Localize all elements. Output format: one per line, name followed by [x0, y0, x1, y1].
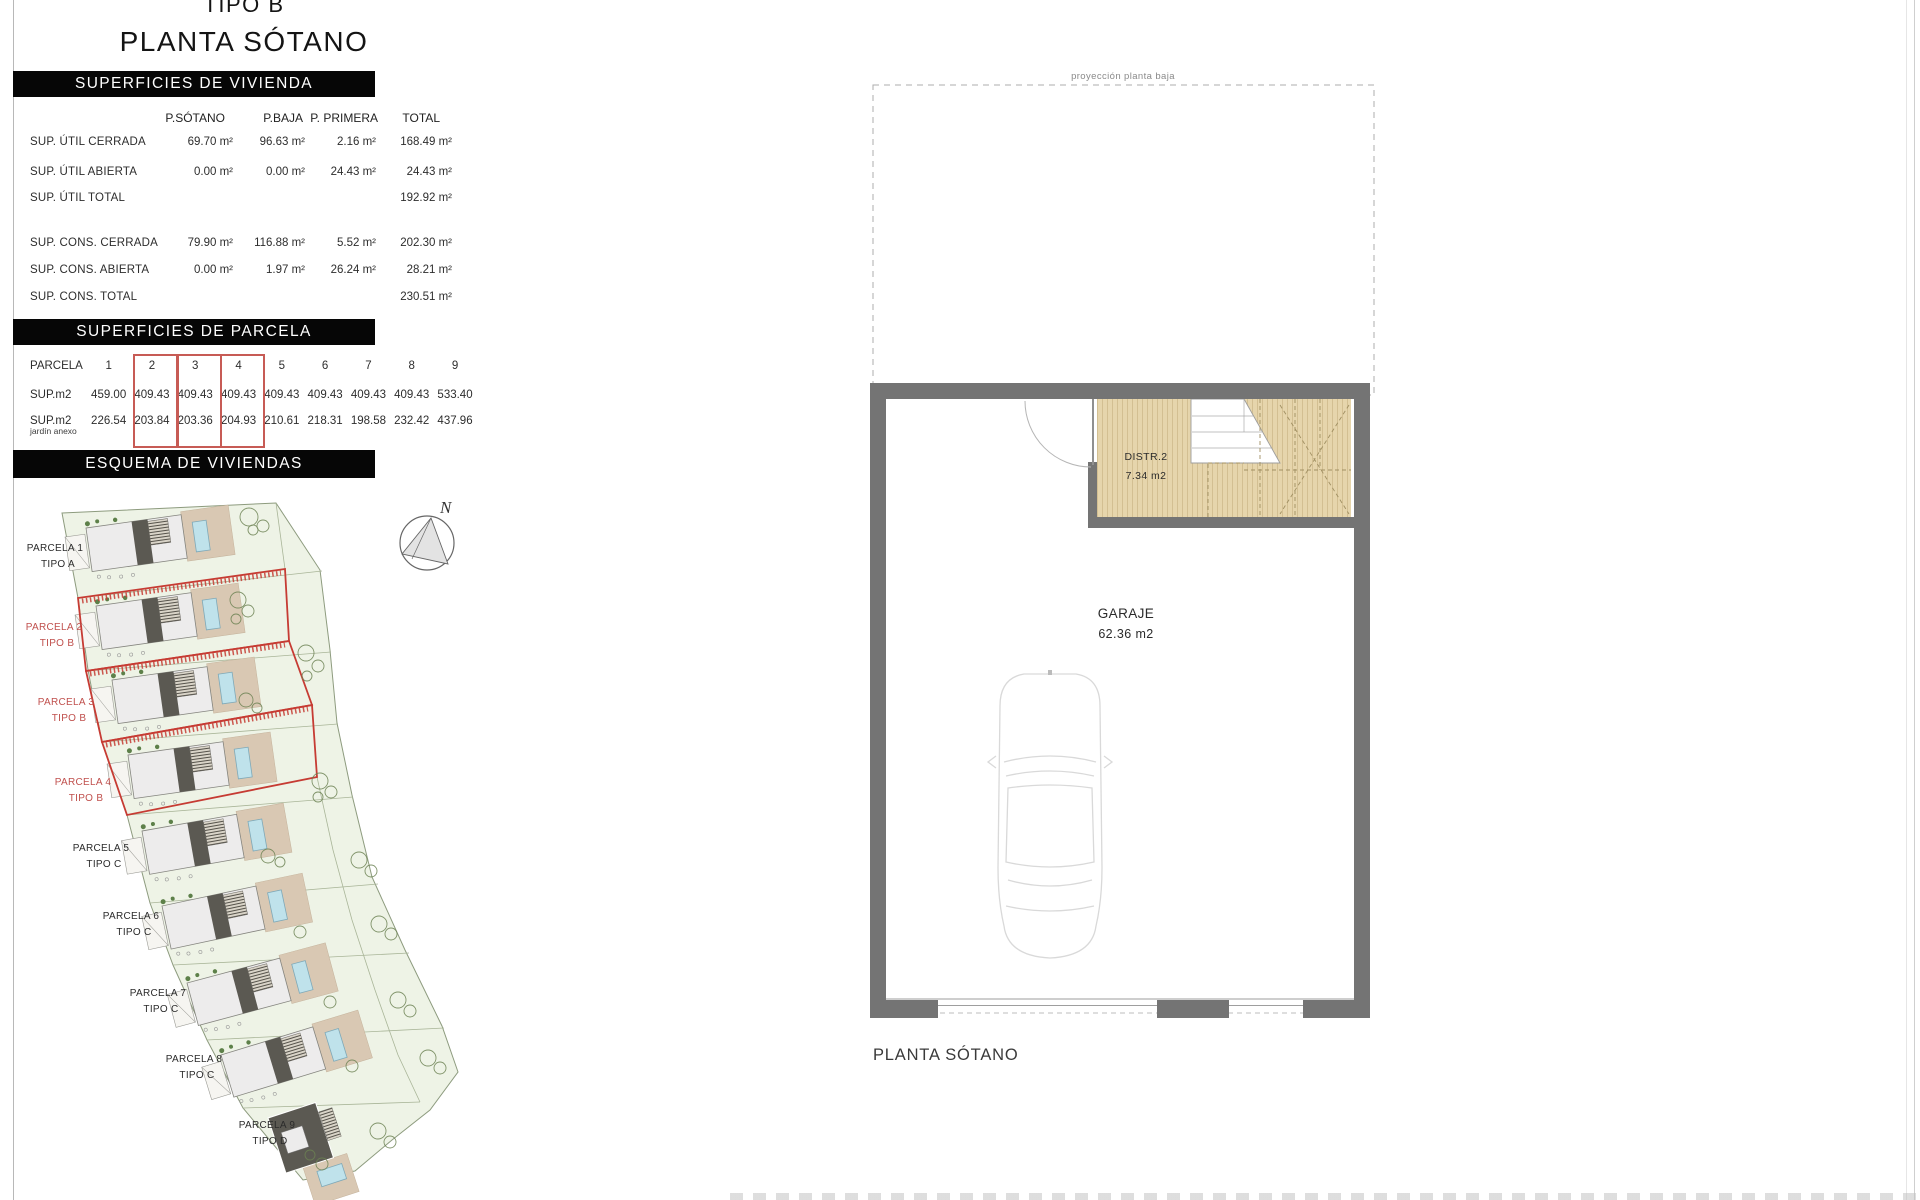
section-bar-superficies-vivienda: SUPERFICIES DE VIVIENDA: [13, 71, 375, 97]
basement-floor-plan: proyección planta baja: [860, 60, 1420, 1070]
plan-caption: PLANTA SÓTANO: [873, 1046, 1019, 1065]
svg-text:TIPO C: TIPO C: [179, 1070, 214, 1081]
svg-text:TIPO A: TIPO A: [41, 559, 75, 570]
svg-text:TIPO C: TIPO C: [116, 927, 151, 938]
car-outline: [988, 670, 1112, 958]
svg-text:PARCELA 7: PARCELA 7: [130, 988, 187, 999]
highlight-box-parcela-3: [177, 354, 222, 448]
svg-text:PARCELA 4: PARCELA 4: [55, 777, 112, 788]
sheet-title-type: TIPO B: [13, 0, 475, 18]
table-row: SUP. CONS. TOTAL 230.51 m²: [13, 287, 465, 307]
svg-text:TIPO D: TIPO D: [252, 1136, 287, 1147]
svg-text:PARCELA 5: PARCELA 5: [73, 843, 130, 854]
col-pprimera: P. PRIMERA: [307, 108, 378, 128]
room-name-distr2: DISTR.2: [1124, 451, 1167, 463]
svg-text:TIPO B: TIPO B: [40, 638, 75, 649]
site-plan: PARCELA 1 TIPO A PARCELA 2 TIPO B PARCEL…: [13, 486, 483, 1200]
cutoff-drawing-strip: [730, 1193, 1916, 1200]
section-bar-esquema-viviendas: ESQUEMA DE VIVIENDAS: [13, 450, 375, 478]
sheet-right-inner-border: [1906, 0, 1907, 1200]
table-row: SUP. ÚTIL CERRADA 69.70 m² 96.63 m² 2.16…: [13, 132, 465, 152]
projection-label: proyección planta baja: [1071, 71, 1175, 82]
svg-text:TIPO B: TIPO B: [52, 713, 87, 724]
col-pbaja: P.BAJA: [235, 108, 307, 128]
door-swing: [1025, 399, 1093, 467]
parcel-label-2: PARCELA 2 TIPO B: [26, 622, 83, 649]
svg-text:TIPO C: TIPO C: [143, 1004, 178, 1015]
table-row: SUP. CONS. ABIERTA 0.00 m² 1.97 m² 26.24…: [13, 260, 465, 280]
svg-text:PARCELA 9: PARCELA 9: [239, 1120, 296, 1131]
svg-text:PARCELA 8: PARCELA 8: [166, 1054, 223, 1065]
parcel-label-4: PARCELA 4 TIPO B: [55, 777, 112, 804]
svg-text:N: N: [439, 498, 453, 517]
svg-text:PARCELA 6: PARCELA 6: [103, 911, 160, 922]
svg-text:PARCELA 2: PARCELA 2: [26, 622, 83, 633]
room-name-garaje: GARAJE: [1098, 606, 1154, 621]
north-compass-icon: N: [400, 498, 454, 570]
col-total: TOTAL: [378, 108, 454, 128]
svg-text:TIPO B: TIPO B: [69, 793, 104, 804]
parcel-label-3: PARCELA 3 TIPO B: [38, 697, 95, 724]
section-bar-superficies-parcela: SUPERFICIES DE PARCELA: [13, 319, 375, 345]
room-area-garaje: 62.36 m2: [1098, 627, 1153, 641]
table-row: SUP. ÚTIL TOTAL 192.92 m²: [13, 188, 465, 208]
garage-threshold-lines: [886, 999, 1354, 1013]
highlight-box-parcela-2: [133, 354, 178, 448]
sheet-right-border: [1914, 0, 1915, 1200]
ground-floor-projection-outline: [873, 85, 1374, 395]
svg-text:TIPO C: TIPO C: [86, 859, 121, 870]
svg-text:PARCELA 3: PARCELA 3: [38, 697, 95, 708]
table-row: SUP. CONS. CERRADA 79.90 m² 116.88 m² 5.…: [13, 233, 465, 253]
highlight-box-parcela-4: [220, 354, 265, 448]
sheet-title-floor: PLANTA SÓTANO: [13, 26, 475, 58]
col-psotano: P.SÓTANO: [131, 108, 235, 128]
viviendas-header-row: P.SÓTANO P.BAJA P. PRIMERA TOTAL: [13, 108, 465, 128]
table-row: SUP. ÚTIL ABIERTA 0.00 m² 0.00 m² 24.43 …: [13, 162, 465, 182]
room-area-distr2: 7.34 m2: [1126, 470, 1167, 482]
parcel-label-5: PARCELA 5 TIPO C: [73, 843, 130, 870]
svg-text:PARCELA 1: PARCELA 1: [27, 543, 84, 554]
